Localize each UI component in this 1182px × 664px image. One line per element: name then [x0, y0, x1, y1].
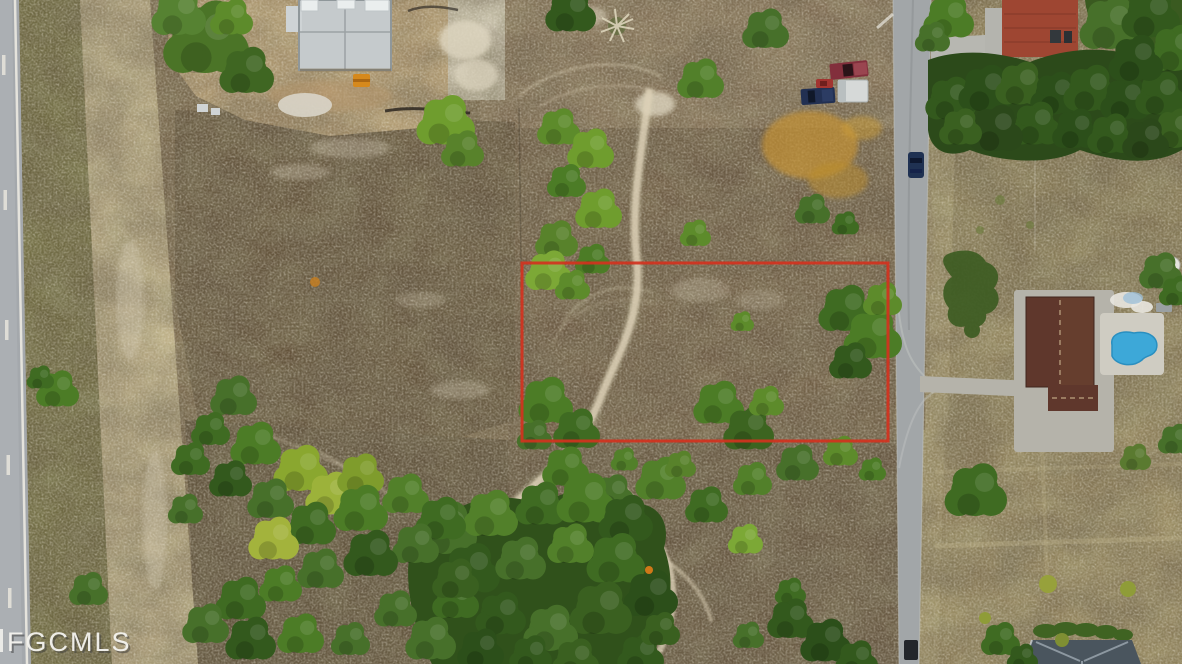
orange-marker: [645, 566, 653, 574]
truck-blue: [800, 87, 835, 105]
tarp: [1123, 292, 1143, 304]
rubble-pile: [278, 93, 332, 117]
car-on-road: [908, 152, 924, 178]
aerial-photo: FGCMLS FGCMLS: [0, 0, 1182, 664]
aerial-photo-canvas: FGCMLS FGCMLS: [0, 0, 1182, 664]
form-walls: [301, 0, 389, 11]
car-dark-bottom: [904, 640, 918, 660]
watermark-text: FGCMLS: [7, 627, 132, 657]
watermark: FGCMLS FGCMLS: [0, 627, 134, 659]
